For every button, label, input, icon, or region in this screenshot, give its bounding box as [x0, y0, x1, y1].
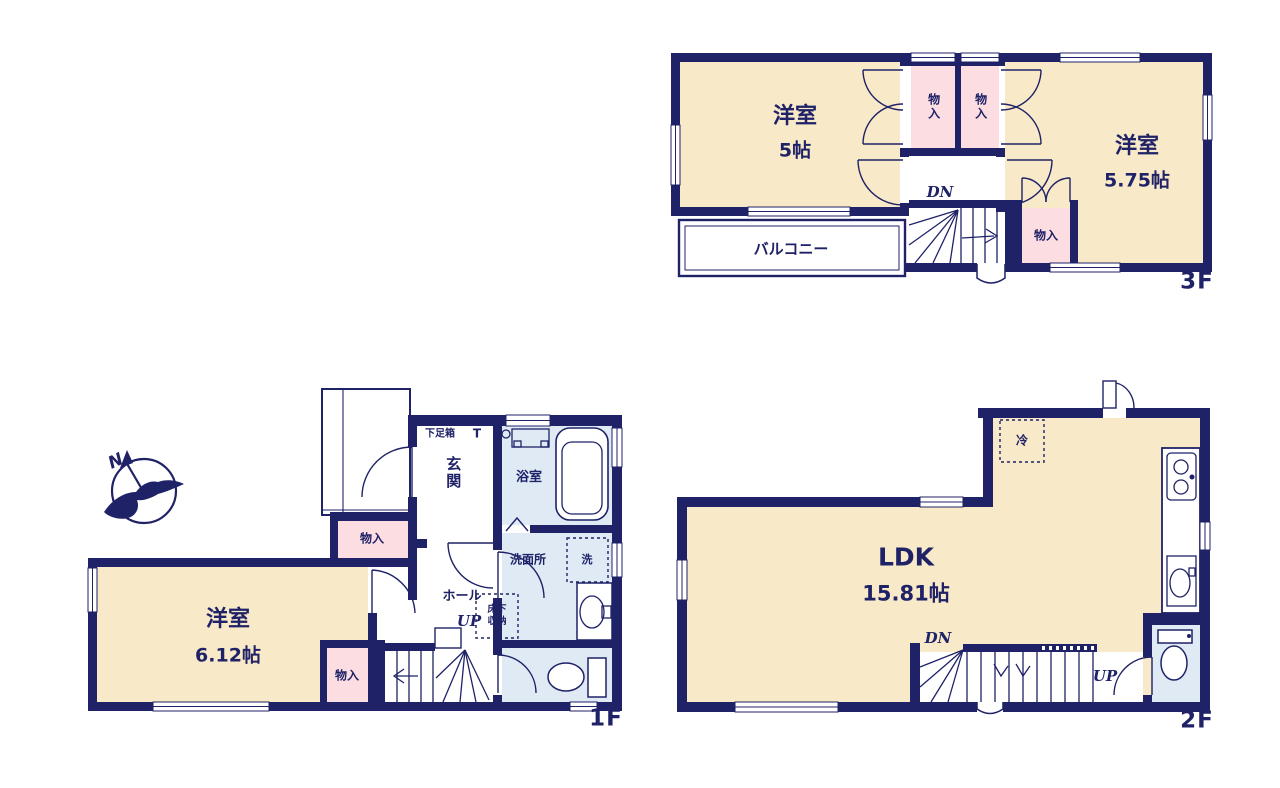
- shoe-cabinet-t-label-1f: T: [473, 427, 481, 440]
- room-size-3f-east: 5.75帖: [1104, 171, 1170, 192]
- underfloor-storage-label-1f: 床下収納: [483, 604, 511, 628]
- washer-label-1f: 洗: [582, 554, 593, 566]
- floor-label-3f: 3F: [1180, 269, 1214, 294]
- toilet-tank-icon: [1158, 630, 1192, 643]
- floor-plan-1f-drawing: N: [80, 380, 640, 740]
- shoe-cabinet-label-1f: 下足箱: [425, 429, 455, 440]
- ldk-label-2f: LDK: [878, 543, 934, 571]
- floor-label-2f: 2F: [1180, 708, 1214, 733]
- fridge-label-2f: 冷: [1016, 434, 1028, 447]
- floor-plan-3f: 洋室 5帖 洋室 5.75帖 物入 物入 物入 DN バルコニー 3F: [660, 40, 1220, 300]
- floor-plan-2f: LDK 15.81帖 冷 DN UP 2F: [660, 375, 1220, 740]
- rooms-3f: [680, 62, 1203, 263]
- entrance-porch-1f: [322, 389, 410, 515]
- stairs-1f: [394, 628, 489, 702]
- toilet-icon: [1161, 646, 1187, 680]
- floor-label-1f: 1F: [589, 706, 623, 731]
- stairs-up-label-2f: UP: [1093, 668, 1117, 685]
- balcony-label-3f: バルコニー: [754, 241, 829, 258]
- floorplan-page: 洋室 5帖 洋室 5.75帖 物入 物入 物入 DN バルコニー 3F: [0, 0, 1280, 788]
- toilet-icon: [588, 658, 606, 697]
- room-label-3f-east: 洋室: [1115, 135, 1159, 159]
- compass-bird-silhouette: [104, 480, 184, 518]
- compass-icon: N: [104, 449, 184, 523]
- stairs-3f: [909, 208, 997, 263]
- room-size-3f-west: 5帖: [779, 141, 811, 162]
- washroom-label-1f: 洗面所: [510, 553, 546, 566]
- compass-north-label: N: [105, 449, 126, 473]
- hall-label-1f: ホール: [442, 590, 481, 604]
- closet-label-3f-left: 物入: [926, 93, 939, 121]
- entrance-label-1f: 玄関: [445, 456, 462, 490]
- closet-mid-label-1f: 物入: [360, 532, 384, 545]
- rooms-2f: [687, 418, 1200, 702]
- closet-bottom-label-1f: 物入: [335, 669, 359, 682]
- stairs-up-label-1f: UP: [457, 613, 481, 630]
- top-door-2f: [1103, 381, 1134, 408]
- stairs-dn-label-3f: DN: [927, 184, 954, 201]
- vanity-sink-icon: [577, 583, 612, 640]
- closet-label-3f-right: 物入: [973, 93, 986, 121]
- ldk-size-2f: 15.81帖: [862, 582, 949, 605]
- kitchen-counter-2f: [1162, 448, 1200, 613]
- room-label-3f-west: 洋室: [773, 105, 817, 129]
- stair-exit-3f: [977, 263, 1005, 283]
- closet-label-3f-bottom: 物入: [1034, 229, 1058, 242]
- floor-plan-1f: N 下足箱 T 玄関 浴室 洗面所 洗 床下収納 ホール UP 物入 物入 洋室…: [80, 380, 640, 740]
- room-label-1f-west: 洋室: [206, 608, 250, 632]
- stairs-dn-label-2f: DN: [925, 630, 952, 647]
- room-size-1f-west: 6.12帖: [195, 646, 261, 667]
- floor-plan-2f-drawing: [660, 375, 1220, 740]
- bathroom-label-1f: 浴室: [516, 471, 542, 485]
- stair-exit-2f: [977, 702, 1003, 714]
